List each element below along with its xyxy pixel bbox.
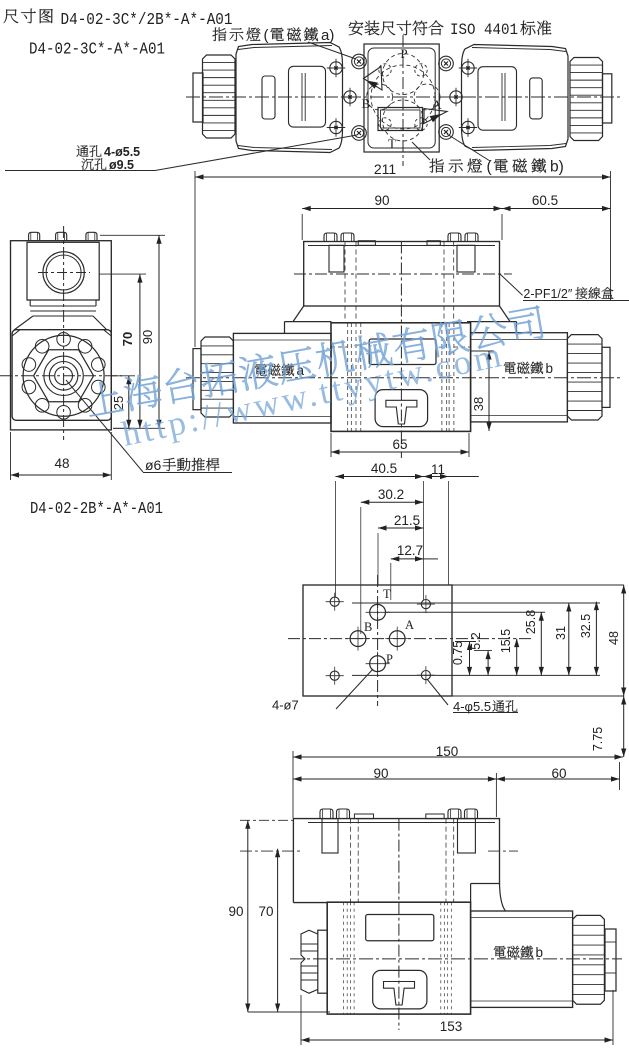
svg-text:70: 70 — [120, 332, 135, 346]
svg-text:70: 70 — [258, 904, 273, 919]
svg-text:90: 90 — [373, 766, 388, 781]
svg-text:P: P — [386, 652, 393, 666]
svg-text:4-φ5.5: 4-φ5.5 — [453, 699, 491, 714]
svg-text:48: 48 — [54, 456, 69, 471]
svg-text:32.5: 32.5 — [579, 614, 593, 638]
svg-text:5.2: 5.2 — [469, 632, 483, 649]
svg-text:D4-02-3C*-A*-A01: D4-02-3C*-A*-A01 — [29, 41, 165, 60]
svg-text:60: 60 — [551, 766, 566, 781]
svg-text:2-PF1/2″: 2-PF1/2″ — [523, 287, 572, 301]
svg-text:25.8: 25.8 — [524, 610, 538, 634]
svg-text:a): a) — [321, 27, 334, 44]
svg-text:(: ( — [264, 27, 269, 44]
svg-text:60.5: 60.5 — [532, 193, 558, 208]
svg-text:7.75: 7.75 — [591, 727, 605, 751]
svg-text:T: T — [388, 136, 396, 151]
svg-text:90: 90 — [374, 193, 389, 208]
svg-text:P: P — [400, 46, 407, 61]
svg-text:b: b — [546, 361, 554, 376]
svg-text:90: 90 — [228, 904, 243, 919]
svg-text:B: B — [362, 96, 371, 111]
svg-text:90: 90 — [140, 330, 155, 344]
svg-text:211: 211 — [374, 161, 397, 177]
svg-text:4-ø5.5: 4-ø5.5 — [104, 145, 140, 159]
svg-text:150: 150 — [436, 744, 459, 759]
svg-text:15.5: 15.5 — [499, 629, 513, 653]
svg-text:4-ø7: 4-ø7 — [272, 698, 299, 713]
svg-text:21.5: 21.5 — [394, 513, 420, 528]
svg-text:T: T — [383, 587, 391, 601]
svg-text:ø9.5: ø9.5 — [109, 158, 134, 172]
svg-text:30.2: 30.2 — [378, 487, 404, 502]
svg-text:38: 38 — [471, 397, 486, 411]
svg-text:153: 153 — [440, 1019, 463, 1034]
svg-text:12.7: 12.7 — [397, 543, 423, 558]
svg-text:0.75: 0.75 — [451, 641, 465, 665]
svg-text:25: 25 — [111, 396, 126, 410]
svg-text:b): b) — [550, 159, 564, 176]
svg-text:11: 11 — [431, 462, 445, 477]
svg-text:B: B — [364, 620, 372, 634]
svg-text:40.5: 40.5 — [371, 461, 397, 476]
svg-text:ø6: ø6 — [145, 457, 162, 473]
svg-text:D4-02-2B*-A*-A01: D4-02-2B*-A*-A01 — [30, 500, 163, 519]
svg-text:65: 65 — [392, 437, 407, 452]
svg-text:48: 48 — [607, 631, 621, 645]
svg-text:A: A — [405, 618, 414, 632]
svg-text:ISO 4401: ISO 4401 — [450, 21, 518, 39]
svg-text:31: 31 — [554, 626, 568, 640]
svg-text:D4-02-3C*/2B*-A*-A01: D4-02-3C*/2B*-A*-A01 — [61, 11, 233, 30]
svg-text:b: b — [536, 945, 544, 960]
